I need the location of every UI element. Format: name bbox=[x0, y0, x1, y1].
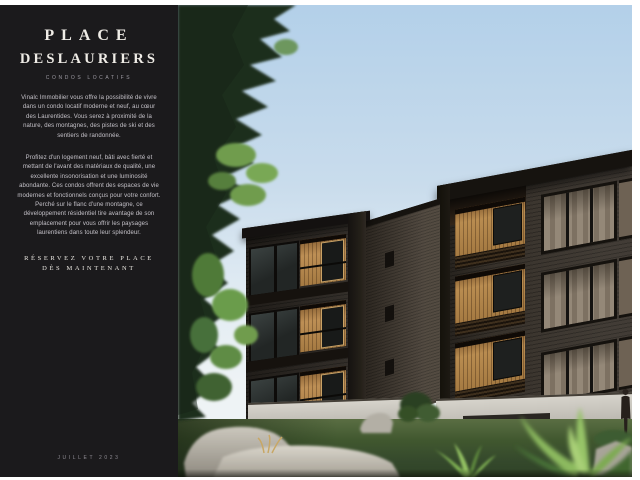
cta-line2: DÈS MAINTENANT bbox=[0, 264, 178, 275]
person-figure bbox=[621, 389, 631, 438]
cta-line1: RÉSERVEZ VOTRE PLACE bbox=[0, 254, 178, 265]
bush bbox=[398, 392, 440, 422]
photo-bottom-shadow bbox=[178, 469, 632, 477]
foreground-vegetation bbox=[178, 5, 632, 477]
small-rock bbox=[360, 413, 393, 433]
footer-date: JUILLET 2023 bbox=[0, 455, 178, 461]
info-sidebar: PLACE DESLAURIERS CONDOS LOCATIFS Vinalc… bbox=[0, 5, 178, 477]
poster-subtitle: CONDOS LOCATIFS bbox=[0, 75, 178, 81]
building-rendering bbox=[178, 5, 632, 477]
cta-block: RÉSERVEZ VOTRE PLACE DÈS MAINTENANT bbox=[0, 254, 178, 275]
poster: PLACE DESLAURIERS CONDOS LOCATIFS Vinalc… bbox=[0, 0, 640, 480]
body-paragraph: Profitez d'un logement neuf, bâti avec f… bbox=[17, 154, 161, 239]
intro-paragraph: Vinalc Immobilier vous offre la possibil… bbox=[17, 94, 161, 141]
poster-title-line1: PLACE bbox=[0, 27, 178, 45]
poster-title-line2: DESLAURIERS bbox=[0, 51, 178, 68]
